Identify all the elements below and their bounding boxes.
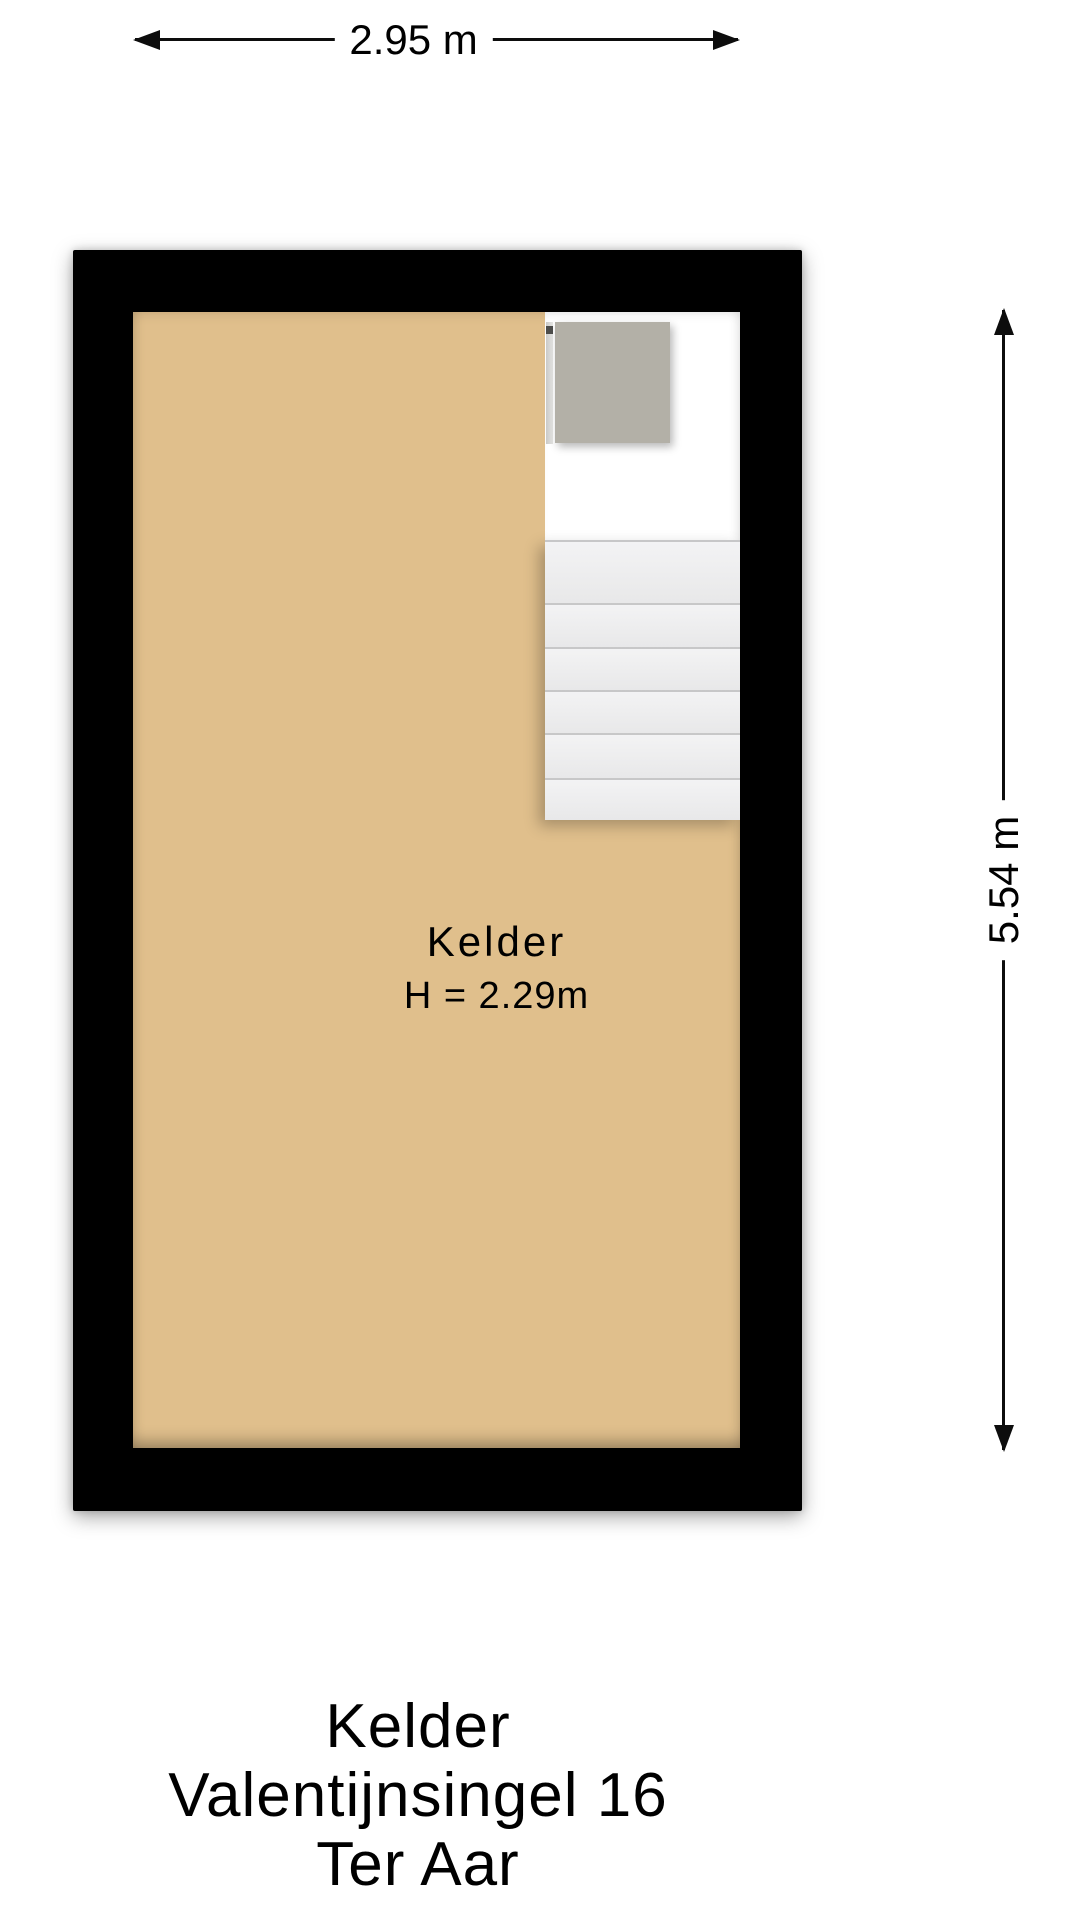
arrow-left-icon: [133, 30, 160, 50]
door-hinge-icon: [546, 326, 553, 334]
caption-room: Kelder: [118, 1692, 718, 1761]
arrow-down-icon: [994, 1425, 1014, 1452]
stair-tread: [545, 778, 740, 820]
stair-tread: [545, 540, 740, 603]
height-dimension-label: 5.54 m: [980, 800, 1028, 960]
arrow-up-icon: [994, 308, 1014, 335]
floorplan-canvas: 2.95 m Kelder H = 2.29m 5.54 m Kelder Va…: [0, 0, 1080, 1920]
room-height-label: H = 2.29m: [193, 973, 800, 1019]
caption: Kelder Valentijnsingel 16 Ter Aar: [118, 1692, 718, 1899]
width-dimension: 2.95 m: [135, 20, 738, 60]
stair-landing: [555, 322, 670, 443]
door-line: [546, 322, 553, 444]
floorplan: Kelder H = 2.29m: [73, 250, 802, 1511]
stair-tread: [545, 733, 740, 778]
staircase: [545, 540, 740, 820]
width-dimension-label: 2.95 m: [334, 16, 492, 64]
stairwell: [545, 312, 740, 820]
arrow-right-icon: [713, 30, 740, 50]
height-dimension: 5.54 m: [984, 310, 1024, 1450]
stair-tread: [545, 647, 740, 690]
caption-city: Ter Aar: [118, 1830, 718, 1899]
floor-area: Kelder H = 2.29m: [133, 312, 740, 1448]
room-label: Kelder H = 2.29m: [193, 918, 800, 1019]
room-name-label: Kelder: [193, 918, 800, 966]
caption-address: Valentijnsingel 16: [118, 1761, 718, 1830]
stair-tread: [545, 603, 740, 647]
stair-tread: [545, 690, 740, 733]
